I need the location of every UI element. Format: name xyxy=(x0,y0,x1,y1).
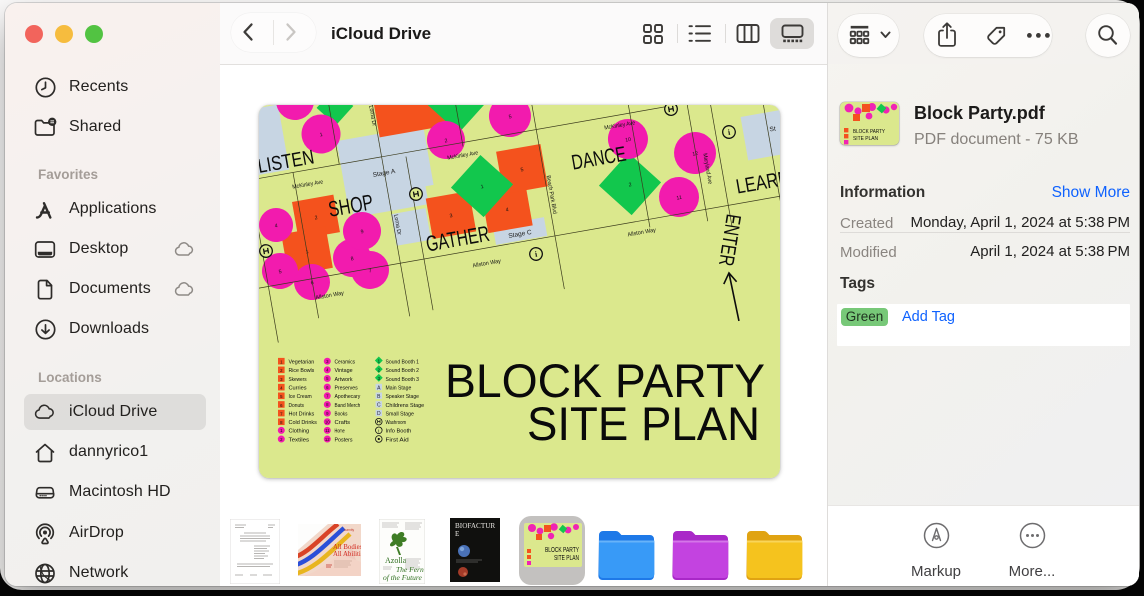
svg-text:Curries: Curries xyxy=(289,385,307,391)
svg-text:Preserves: Preserves xyxy=(335,385,358,391)
svg-text:Azolla: Azolla xyxy=(385,556,407,565)
svg-text:Clothing: Clothing xyxy=(289,429,310,435)
svg-text:Info Booth: Info Booth xyxy=(386,429,412,435)
svg-text:Ceramics: Ceramics xyxy=(335,360,356,366)
svg-text:Skewers: Skewers xyxy=(289,377,307,383)
svg-text:BIOFACTUR: BIOFACTUR xyxy=(455,522,495,530)
svg-text:Cold Drinks: Cold Drinks xyxy=(289,420,317,426)
svg-text:SITE PLAN: SITE PLAN xyxy=(527,398,760,451)
svg-text:SITE PLAN: SITE PLAN xyxy=(554,555,579,562)
svg-text:11: 11 xyxy=(325,428,330,433)
svg-text:SITE PLAN: SITE PLAN xyxy=(853,136,878,142)
svg-text:Vegetarian: Vegetarian xyxy=(289,360,315,366)
svg-text:11: 11 xyxy=(676,195,682,202)
svg-text:Speaker Stage: Speaker Stage xyxy=(386,394,420,400)
svg-text:BLOCK PARTY: BLOCK PARTY xyxy=(545,547,579,554)
svg-text:Apothecary: Apothecary xyxy=(335,394,361,400)
svg-text:All Abilities: All Abilities xyxy=(333,551,361,558)
svg-text:Band Merch: Band Merch xyxy=(335,403,361,409)
svg-text:Books: Books xyxy=(335,411,348,417)
svg-text:Washroom: Washroom xyxy=(386,420,407,426)
svg-text:Home: Home xyxy=(335,429,346,435)
svg-text:Small Stage: Small Stage xyxy=(386,411,415,417)
svg-text:Donuts: Donuts xyxy=(289,403,305,409)
svg-text:Rice Bowls: Rice Bowls xyxy=(289,368,315,374)
svg-text:Sound Booth 3: Sound Booth 3 xyxy=(386,377,420,383)
svg-text:Childrens Stage: Childrens Stage xyxy=(386,403,425,409)
svg-text:12: 12 xyxy=(325,437,330,442)
svg-text:D: D xyxy=(377,411,381,417)
svg-text:All Bodies,: All Bodies, xyxy=(333,544,361,551)
svg-text:Vintage: Vintage xyxy=(335,368,354,374)
svg-text:Sound Booth 1: Sound Booth 1 xyxy=(386,360,420,366)
svg-text:Sound Booth 2: Sound Booth 2 xyxy=(386,368,420,374)
svg-text:10: 10 xyxy=(625,137,632,144)
svg-text:of the Future: of the Future xyxy=(383,573,423,582)
svg-text:BLOCK PARTY: BLOCK PARTY xyxy=(853,129,885,135)
svg-text:Ice Cream: Ice Cream xyxy=(289,394,312,400)
svg-text:First Aid: First Aid xyxy=(386,437,409,443)
svg-text:sunnity: sunnity xyxy=(344,528,355,532)
svg-text:Textiles: Textiles xyxy=(289,437,310,443)
svg-text:10: 10 xyxy=(325,419,330,424)
svg-text:E: E xyxy=(455,530,460,538)
svg-text:Crafts: Crafts xyxy=(335,420,351,426)
svg-text:Main Stage: Main Stage xyxy=(386,385,412,391)
svg-text:C: C xyxy=(377,403,381,409)
svg-text:Artwork: Artwork xyxy=(335,377,353,383)
svg-text:Hot Drinks: Hot Drinks xyxy=(289,411,315,417)
svg-text:Posters: Posters xyxy=(335,437,353,443)
